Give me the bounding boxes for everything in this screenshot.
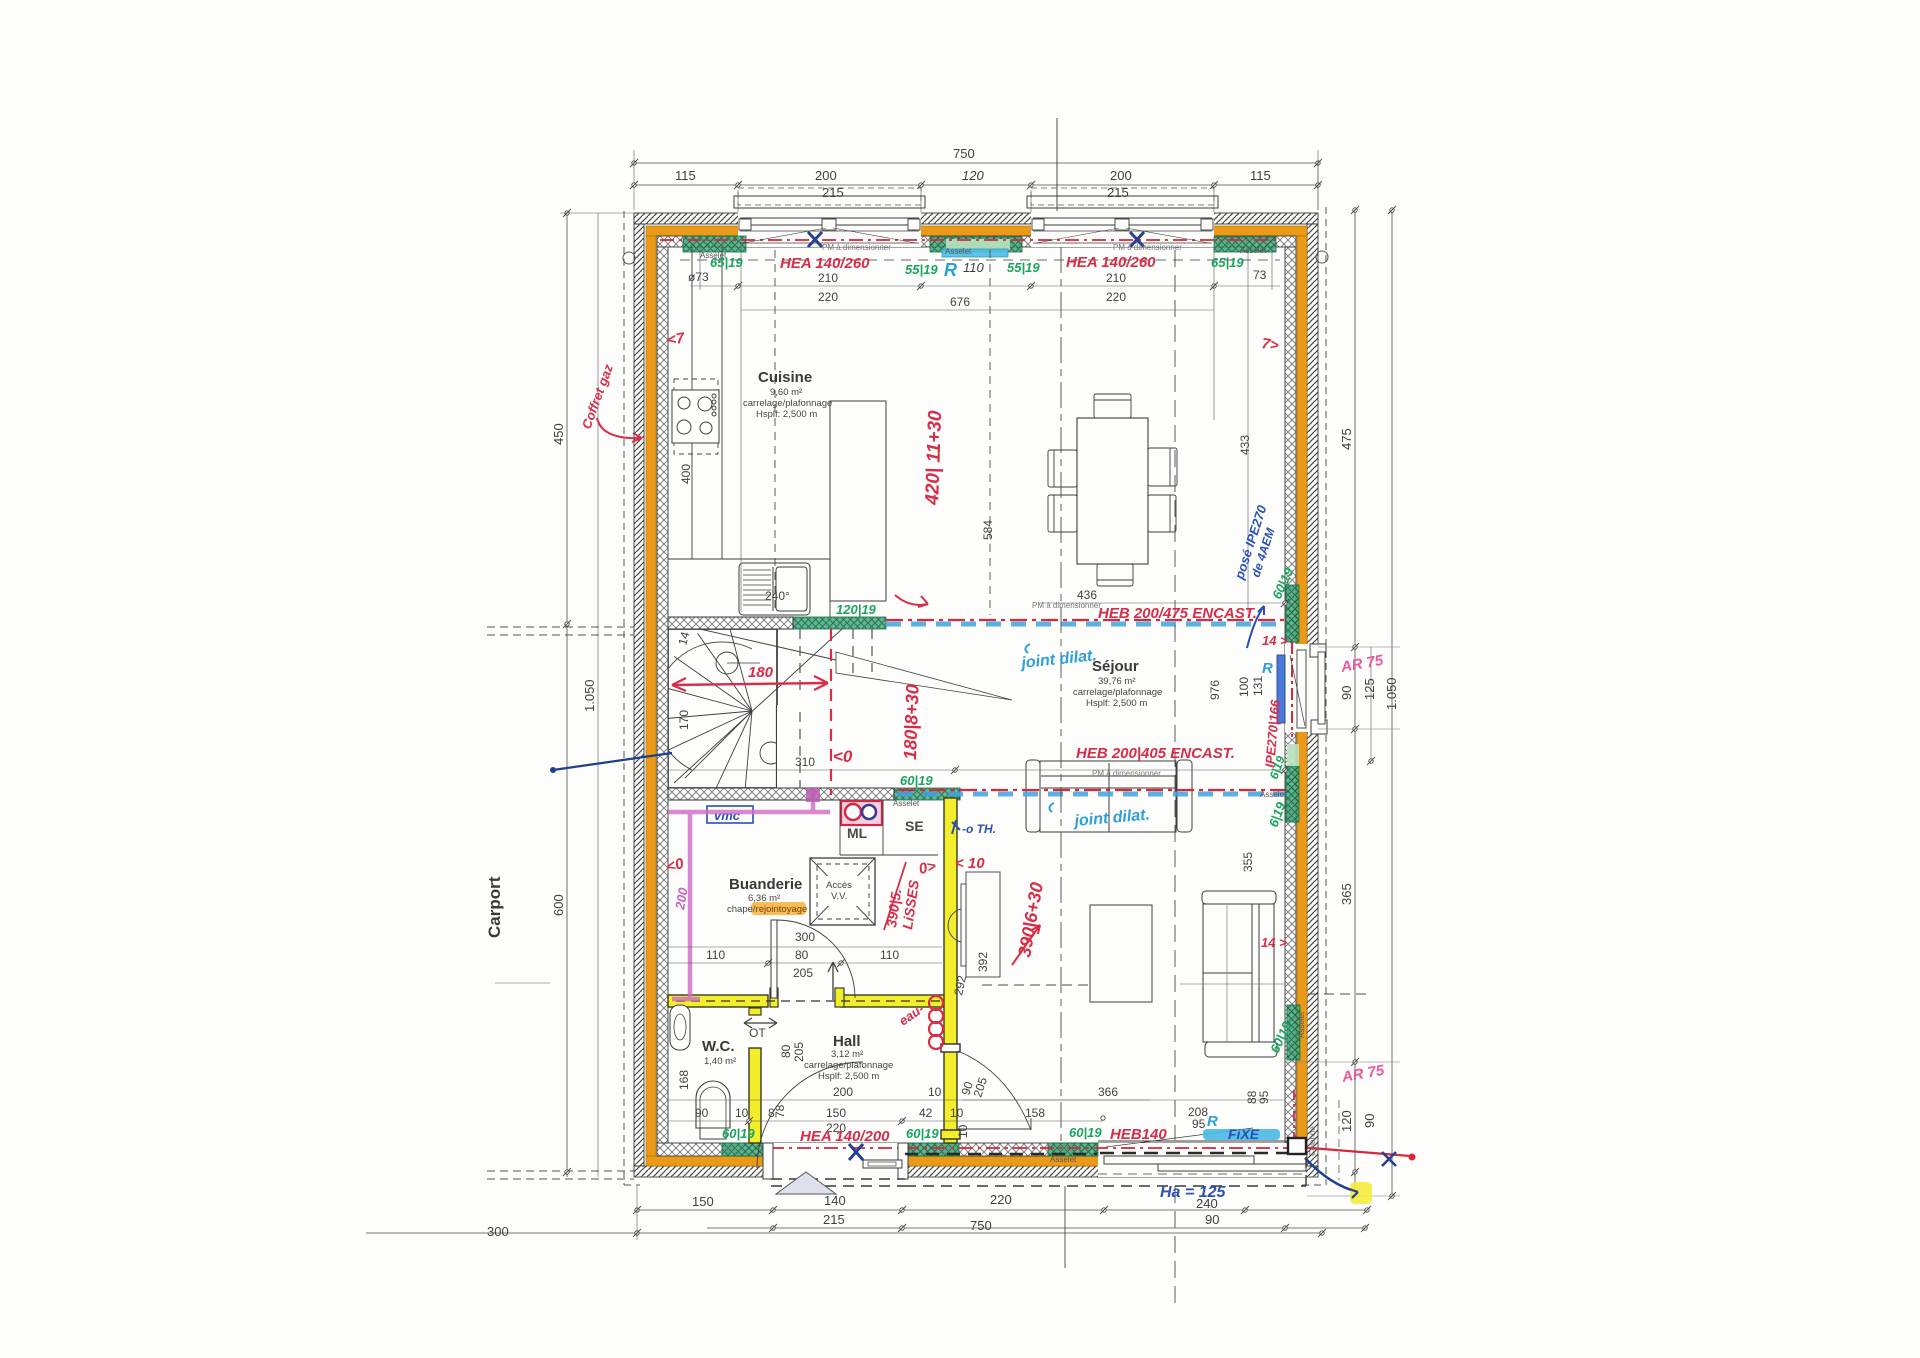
svg-text:Carport: Carport <box>485 876 504 938</box>
svg-text:205: 205 <box>793 966 813 980</box>
svg-text:1,40 m²: 1,40 m² <box>704 1056 736 1067</box>
svg-text:1.050: 1.050 <box>582 679 597 712</box>
svg-text:Colonne: Colonne <box>1308 1126 1317 1156</box>
svg-text:215: 215 <box>1107 185 1129 200</box>
svg-text:433: 433 <box>1238 435 1252 455</box>
svg-text:PM à dimensionner: PM à dimensionner <box>1113 243 1182 252</box>
svg-text:Cuisine: Cuisine <box>758 369 812 386</box>
svg-text:158: 158 <box>1025 1106 1045 1120</box>
svg-text:676: 676 <box>950 295 970 309</box>
svg-text:215: 215 <box>822 185 844 200</box>
svg-text:Hsplf: 2,500 m: Hsplf: 2,500 m <box>756 409 817 420</box>
svg-text:475: 475 <box>1339 428 1354 450</box>
svg-text:Buanderie: Buanderie <box>729 876 802 893</box>
svg-text:150: 150 <box>826 1106 846 1120</box>
svg-text:carrelage/plafonnage: carrelage/plafonnage <box>1073 687 1162 698</box>
svg-text:110: 110 <box>963 260 984 275</box>
svg-text:366: 366 <box>1098 1085 1118 1099</box>
svg-text:HEA 140/260: HEA 140/260 <box>780 255 870 272</box>
svg-text:80: 80 <box>795 948 809 962</box>
svg-text:240°: 240° <box>765 589 790 603</box>
svg-text:Asselet: Asselet <box>1297 1011 1306 1038</box>
svg-text:80: 80 <box>779 1044 793 1058</box>
svg-text:PM à dimensionner: PM à dimensionner <box>1032 601 1101 610</box>
svg-text:310: 310 <box>795 755 815 769</box>
svg-text:FiXE: FiXE <box>1228 1126 1260 1142</box>
svg-text:PM à dimensionner: PM à dimensionner <box>1092 769 1161 778</box>
svg-text:39,76 m²: 39,76 m² <box>1098 676 1136 687</box>
svg-text:Accès: Accès <box>826 880 852 891</box>
svg-text:168: 168 <box>677 1070 691 1090</box>
svg-text:95: 95 <box>1192 1117 1206 1131</box>
svg-text:100: 100 <box>1237 677 1251 697</box>
svg-text:220: 220 <box>990 1192 1012 1207</box>
svg-text:PM à dimensionner: PM à dimensionner <box>822 243 891 252</box>
svg-text:Hsplf: 2,500 m: Hsplf: 2,500 m <box>1086 698 1147 709</box>
svg-text:200: 200 <box>1110 168 1132 183</box>
svg-text:60|19: 60|19 <box>906 1126 939 1141</box>
svg-text:220: 220 <box>818 290 838 304</box>
svg-text:150: 150 <box>692 1194 714 1209</box>
svg-text:Séjour: Séjour <box>1092 658 1139 675</box>
svg-text:1.050: 1.050 <box>1384 677 1399 710</box>
svg-text:976: 976 <box>1208 680 1222 700</box>
svg-text:140: 140 <box>824 1193 846 1208</box>
svg-text:215: 215 <box>823 1212 845 1227</box>
svg-text:Asselet: Asselet <box>945 247 972 256</box>
svg-text:Asselet: Asselet <box>1240 246 1267 255</box>
svg-text:10: 10 <box>956 1124 970 1138</box>
svg-text:R: R <box>1262 660 1273 677</box>
svg-text:210: 210 <box>818 271 838 285</box>
svg-text:<0: <0 <box>833 747 853 766</box>
svg-text:120|19: 120|19 <box>836 602 877 617</box>
svg-text:ø73: ø73 <box>688 270 709 284</box>
svg-text:55|19: 55|19 <box>905 262 938 277</box>
svg-text:60|19: 60|19 <box>1069 1125 1102 1140</box>
svg-text:HEB 200/475 ENCAST.: HEB 200/475 ENCAST. <box>1098 605 1257 622</box>
svg-text:10: 10 <box>735 1106 749 1120</box>
svg-text:355: 355 <box>1241 852 1255 872</box>
svg-text:HEA 140/260: HEA 140/260 <box>1066 254 1156 271</box>
svg-text:436: 436 <box>1077 588 1097 602</box>
svg-text:55|19: 55|19 <box>1007 260 1040 275</box>
svg-text:750: 750 <box>953 146 975 161</box>
svg-text:95: 95 <box>1257 1090 1271 1104</box>
svg-text:-o TH.: -o TH. <box>962 822 996 836</box>
svg-text:120: 120 <box>962 168 984 183</box>
svg-text:14 >: 14 > <box>1262 633 1288 648</box>
svg-text:78: 78 <box>773 1104 787 1118</box>
svg-text:ML: ML <box>847 825 868 841</box>
svg-text:Asselet: Asselet <box>1050 1155 1077 1164</box>
svg-text:60|19: 60|19 <box>722 1126 755 1141</box>
svg-text:200: 200 <box>833 1085 853 1099</box>
svg-text:110: 110 <box>880 948 899 962</box>
svg-text:10: 10 <box>950 1106 964 1120</box>
svg-text:200: 200 <box>815 168 837 183</box>
svg-text:65|19: 65|19 <box>710 255 743 270</box>
svg-text:300: 300 <box>795 930 815 944</box>
svg-text:90: 90 <box>1205 1212 1219 1227</box>
svg-text:Asselet: Asselet <box>1260 790 1287 799</box>
svg-text:205: 205 <box>792 1042 806 1062</box>
svg-text:carrelage/plafonnage: carrelage/plafonnage <box>743 398 832 409</box>
svg-text:120: 120 <box>1339 1110 1354 1132</box>
svg-text:<7: <7 <box>666 330 686 349</box>
svg-text:HEB140: HEB140 <box>1110 1126 1167 1143</box>
svg-text:carrelage/plafonnage: carrelage/plafonnage <box>804 1060 893 1071</box>
svg-text:chape/rejointoyage: chape/rejointoyage <box>727 904 807 915</box>
svg-text:65|19: 65|19 <box>1211 255 1244 270</box>
svg-text:131: 131 <box>1251 676 1265 696</box>
svg-text:420| 11+30: 420| 11+30 <box>922 410 946 506</box>
svg-text:115: 115 <box>675 168 696 183</box>
svg-text:210: 210 <box>1106 271 1126 285</box>
svg-text:R: R <box>1207 1113 1218 1130</box>
svg-text:750: 750 <box>970 1218 992 1233</box>
svg-text:584: 584 <box>981 520 995 540</box>
svg-text:W.C.: W.C. <box>702 1038 735 1055</box>
svg-text:HEA 140/200: HEA 140/200 <box>800 1128 890 1145</box>
svg-text:Asselet: Asselet <box>893 799 920 808</box>
svg-text:115: 115 <box>1250 168 1271 183</box>
svg-text:300: 300 <box>487 1224 509 1239</box>
svg-text:60|19: 60|19 <box>900 773 933 788</box>
svg-text:392: 392 <box>976 952 990 972</box>
svg-text:10: 10 <box>928 1085 942 1099</box>
svg-text:400: 400 <box>679 464 693 484</box>
svg-text:R: R <box>944 260 957 280</box>
svg-text:14 >: 14 > <box>1261 935 1287 950</box>
svg-text:90: 90 <box>1339 686 1354 700</box>
svg-text:42: 42 <box>919 1106 933 1120</box>
svg-text:90: 90 <box>695 1106 709 1120</box>
svg-text:3,12 m²: 3,12 m² <box>831 1049 863 1060</box>
svg-text:< 10: < 10 <box>955 855 985 872</box>
svg-text:7>: 7> <box>1260 335 1280 354</box>
svg-text:HEB 200|405 ENCAST.: HEB 200|405 ENCAST. <box>1076 745 1235 762</box>
svg-text:OT: OT <box>749 1026 766 1040</box>
svg-text:110: 110 <box>706 948 725 962</box>
svg-text:Ha = 125: Ha = 125 <box>1160 1184 1226 1201</box>
svg-text:170: 170 <box>677 710 691 730</box>
svg-text:V.V.: V.V. <box>831 891 847 902</box>
svg-text:125: 125 <box>1362 678 1377 700</box>
svg-text:180: 180 <box>748 664 774 681</box>
svg-text:SE: SE <box>905 818 924 834</box>
svg-text:Hsplf: 2,500 m: Hsplf: 2,500 m <box>818 1071 879 1082</box>
svg-text:180|8+30: 180|8+30 <box>900 684 923 760</box>
svg-text:450: 450 <box>551 423 566 445</box>
svg-text:600: 600 <box>551 894 566 916</box>
svg-text:90: 90 <box>1362 1114 1377 1128</box>
svg-text:73: 73 <box>1253 268 1267 282</box>
svg-text:Hall: Hall <box>833 1033 861 1050</box>
svg-text:220: 220 <box>1106 290 1126 304</box>
svg-text:365: 365 <box>1339 883 1354 905</box>
